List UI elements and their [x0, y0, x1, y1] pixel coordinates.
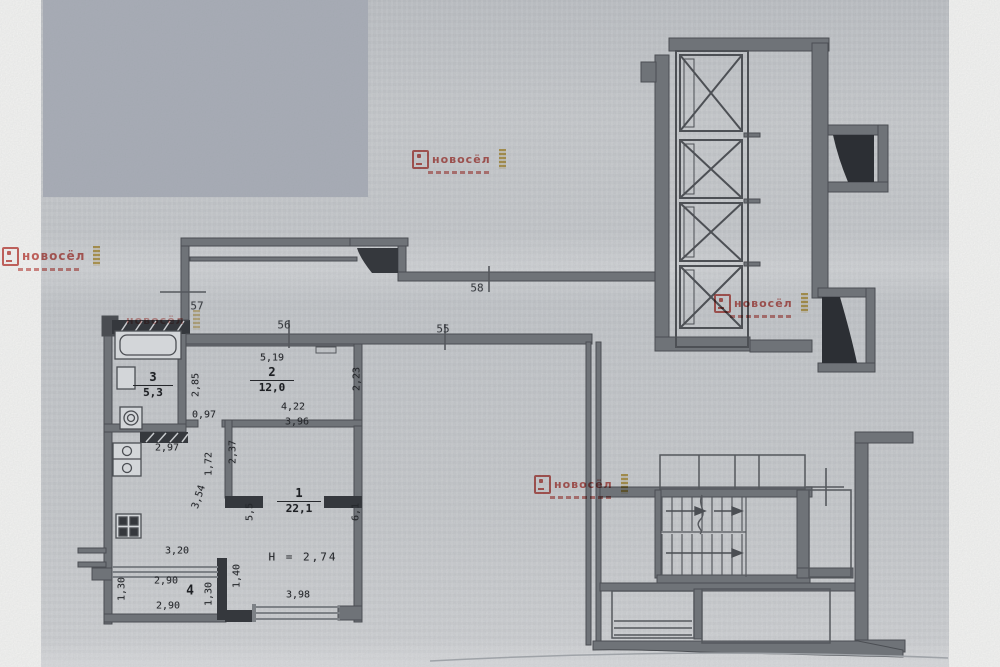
elevator-lobby-sill [750, 340, 812, 352]
room1-window-line [255, 618, 340, 620]
corridor-wall-left [181, 238, 189, 320]
dim-2-85: 2,85 [191, 373, 202, 397]
floor-plan-drawing [0, 0, 1000, 667]
room-2-area: 12,0 [250, 381, 294, 395]
dim-3-98: 3,98 [286, 590, 310, 601]
room1-window-line [255, 606, 340, 608]
axis-label-56: 56 [277, 319, 290, 332]
stair-wall-right [797, 490, 809, 577]
axis-label-55: 55 [436, 323, 449, 336]
wall-room1-bottom-right [338, 606, 362, 620]
room-3-number: 3 [133, 371, 173, 386]
outer-flange-top [855, 432, 913, 443]
lobby-wall-vertical-a [586, 342, 591, 645]
outer-wall-right [855, 432, 868, 652]
room1-window-line [255, 612, 340, 614]
corridor-wall-top [181, 238, 357, 246]
lower-corridor-top [600, 583, 855, 591]
room-4-number: 4 [186, 584, 194, 599]
dim-3-20: 3,20 [165, 546, 189, 557]
ledge-top [78, 548, 106, 553]
loggia-window-line [112, 566, 218, 568]
dim-1-40: 1,40 [232, 564, 243, 588]
stove-burner [130, 528, 138, 536]
dim-5-5: 5,5 [245, 503, 256, 521]
dim-2-90-a: 2,90 [154, 576, 178, 587]
dim-1-72: 1,72 [204, 452, 215, 476]
stove-burner [119, 517, 127, 525]
dim-1-30-a: 1,30 [117, 577, 128, 601]
stove-burner [119, 528, 127, 536]
scanned-page: 57 56 55 58 3 5,3 2 12,0 1 22,1 4 5,19 2… [0, 0, 1000, 667]
room-3-label: 3 5,3 [133, 371, 173, 400]
room-3-area: 5,3 [133, 386, 173, 400]
stair-wall-bottom [657, 575, 810, 583]
dim-0-97: 0,97 [192, 410, 216, 421]
toilet-base [120, 407, 142, 429]
stair-wall-left [655, 490, 661, 578]
room-1-number: 1 [277, 487, 321, 502]
ledge-bottom [78, 562, 106, 567]
loggia-pier-bottom [225, 610, 255, 622]
ceiling-height-note: H = 2,74 [269, 551, 338, 564]
loggia-window-line [112, 571, 218, 573]
wall-bathroom-bottom [104, 424, 186, 432]
axis-label-58: 58 [470, 282, 483, 295]
elevator-door-tick [744, 262, 760, 266]
elevator-flange-left [641, 62, 656, 82]
room1-window-jamb [252, 604, 256, 622]
elevator-wall-bottom [655, 337, 750, 351]
dim-2-90-b: 2,90 [156, 601, 180, 612]
room-1-label: 1 22,1 [277, 487, 321, 516]
dim-5-19: 5,19 [260, 353, 284, 364]
dim-3-96: 3,96 [285, 417, 309, 428]
ledge-pier [92, 568, 112, 580]
corridor-wall-top-inner [190, 257, 357, 261]
lower-corridor-divider [694, 589, 702, 639]
dim-2-37: 2,37 [228, 440, 239, 464]
wall-hall-top-a [186, 420, 198, 427]
wall-room1-right [354, 426, 362, 622]
room-2-number: 2 [250, 366, 294, 381]
elevator-door-tick [744, 133, 760, 137]
dim-1-30-b: 1,30 [204, 582, 215, 606]
stove-burner [130, 517, 138, 525]
room-2-label: 2 12,0 [250, 366, 294, 395]
dim-4-22: 4,22 [281, 402, 305, 413]
corridor-wall-upper-run [398, 272, 658, 281]
corridor-duct-top [350, 238, 408, 246]
wall-loggia-bottom [104, 614, 226, 622]
elevator-wall-right [812, 43, 828, 298]
room-1-area: 22,1 [277, 502, 321, 516]
elevator-wall-top [669, 38, 829, 51]
dim-2-97: 2,97 [155, 443, 179, 454]
dim-6-1: 6,1 [351, 503, 362, 521]
axis-label-57: 57 [190, 300, 203, 313]
corridor-wall-lower-run [186, 334, 592, 344]
dim-2-23: 2,23 [352, 367, 363, 391]
elevator-door-tick [744, 199, 760, 203]
elevator-wall-left [655, 55, 669, 351]
